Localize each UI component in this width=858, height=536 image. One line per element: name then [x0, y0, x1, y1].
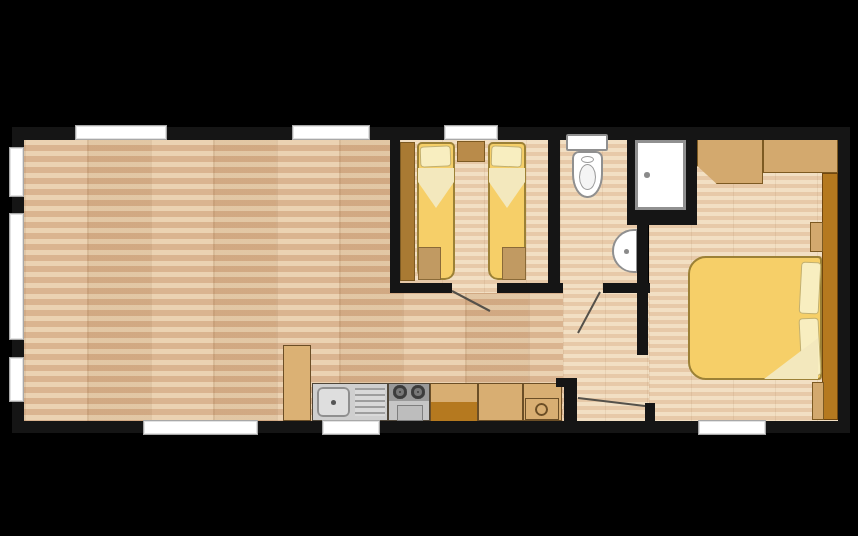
master-bedroom-door-swing: [578, 398, 645, 406]
window-bottom-3: [698, 420, 766, 435]
window-bottom-2: [322, 420, 380, 435]
window-top-3: [444, 125, 498, 140]
plan-area: [12, 127, 850, 433]
window-left-2: [9, 213, 24, 340]
window-bottom-1: [143, 420, 258, 435]
window-left-3: [9, 357, 24, 402]
window-left-1: [9, 147, 24, 197]
toilet-cistern: [566, 134, 608, 151]
window-top-1: [75, 125, 167, 140]
floorplan-image: [0, 0, 858, 536]
shower-door-handle-dot: [644, 172, 650, 178]
twin-bedroom-door-swing: [452, 291, 490, 311]
door-swing-overlay: [12, 127, 850, 433]
bathroom-door-swing: [578, 292, 600, 333]
window-top-2: [292, 125, 370, 140]
